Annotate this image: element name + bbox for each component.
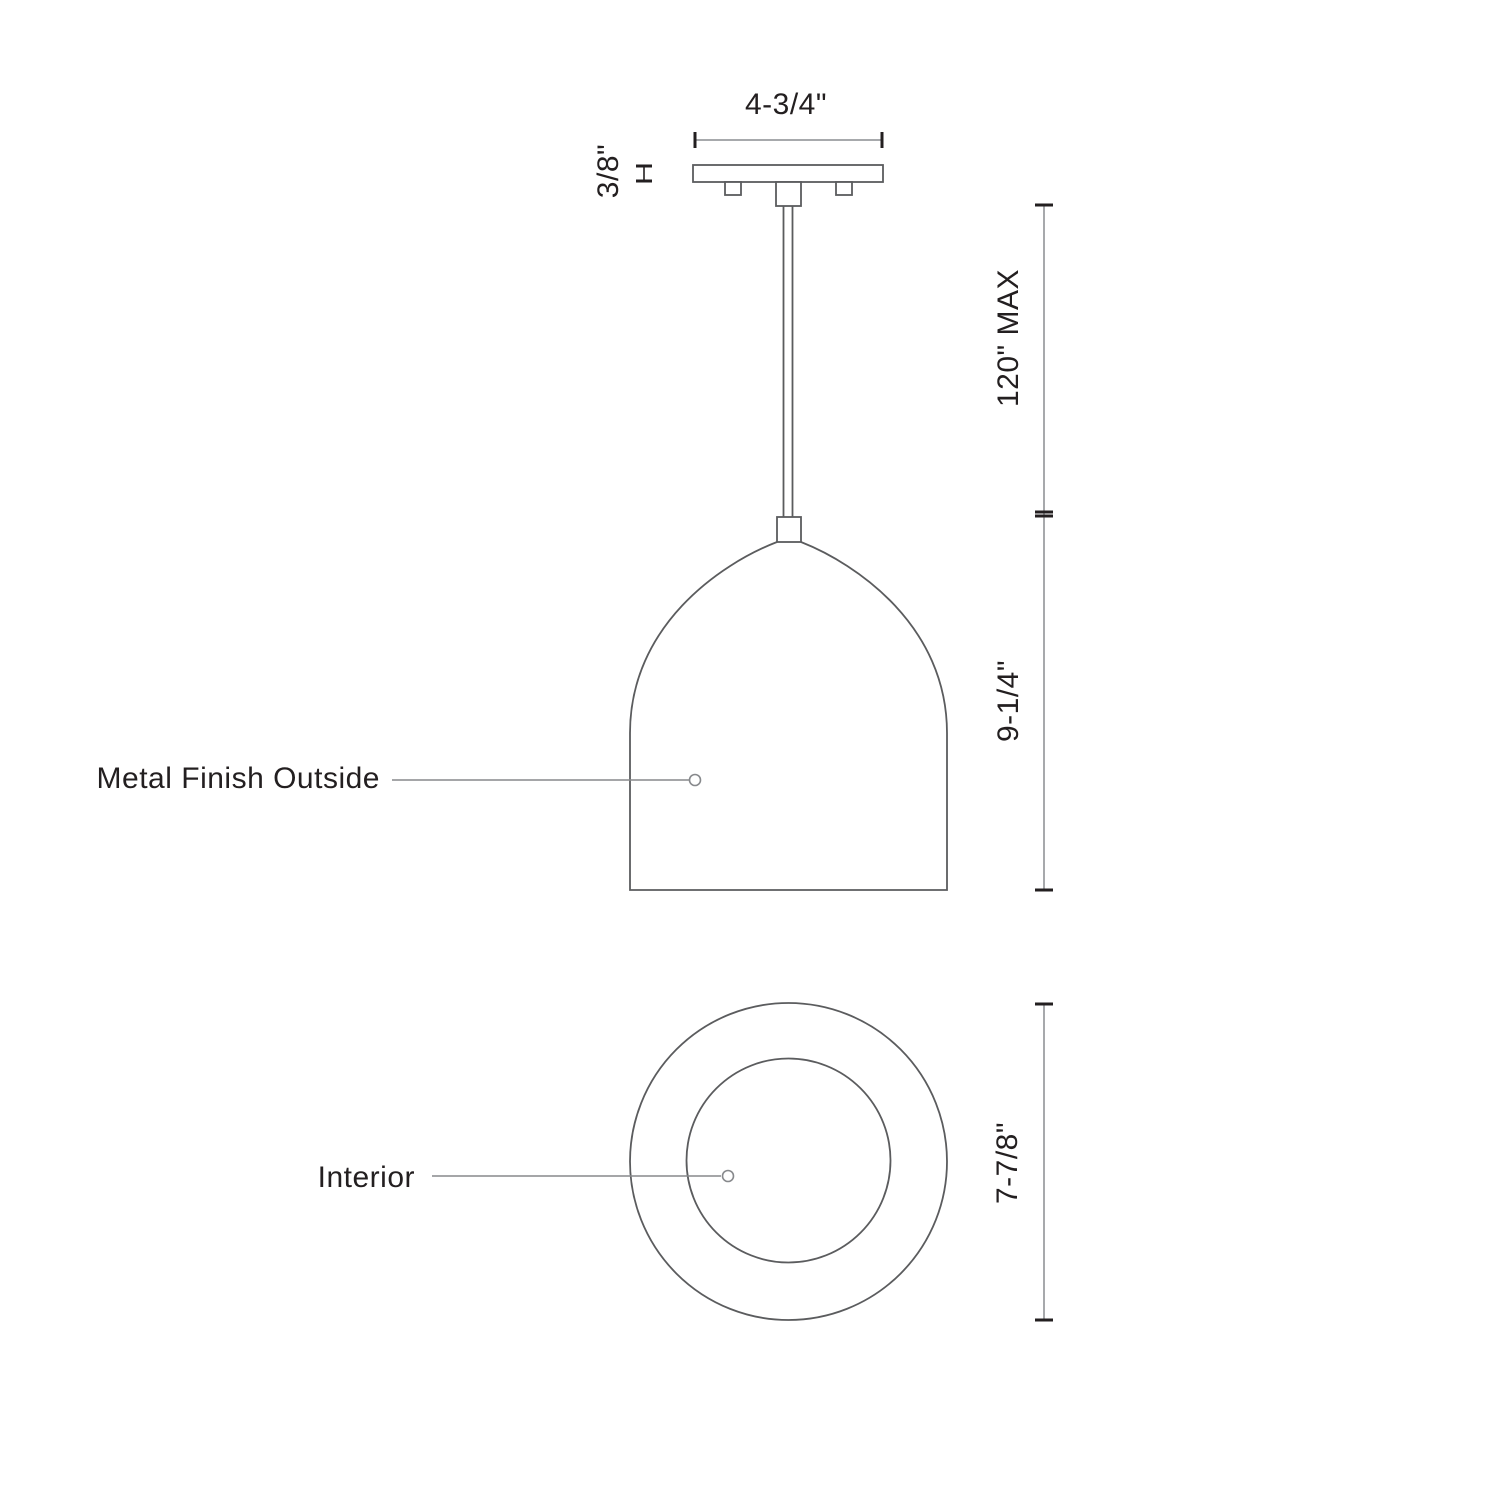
shade-top-connector [777,517,801,542]
shade-finish-callout: Metal Finish Outside [97,762,701,795]
diameter-label: 7-7/8" [991,1122,1024,1204]
canopy-thickness-label: 3/8" [592,144,625,198]
right-dimension-stack: 120" MAX 9-1/4" [992,205,1053,890]
canopy-stem-hub [776,182,801,206]
interior-callout-label: Interior [318,1161,415,1194]
shade-profile [630,542,947,890]
canopy-width-label: 4-3/4" [745,88,827,121]
canopy-width-dimension: 4-3/4" [695,88,882,148]
bottom-view: Interior 7-7/8" [318,1003,1053,1320]
dimension-drawing: 4-3/4" 3/8" [0,0,1500,1500]
front-elevation-view: 4-3/4" 3/8" [97,88,1053,890]
spec-sheet-page: 4-3/4" 3/8" [0,0,1500,1500]
downrod [784,206,793,517]
shade-finish-leader-dot [690,775,701,786]
canopy-thickness-dimension: 3/8" [592,144,652,198]
interior-leader-dot [723,1171,734,1182]
interior-callout: Interior [318,1161,734,1194]
canopy-left-screw [725,182,741,195]
ceiling-canopy-plate [693,165,883,182]
rod-length-label: 120" MAX [992,269,1025,407]
shade-height-label: 9-1/4" [992,660,1025,742]
shade-inner-circle [687,1059,891,1263]
shade-finish-callout-label: Metal Finish Outside [97,762,380,795]
diameter-dimension: 7-7/8" [991,1004,1053,1320]
canopy-right-screw [836,182,852,195]
shade-outer-circle [630,1003,947,1320]
